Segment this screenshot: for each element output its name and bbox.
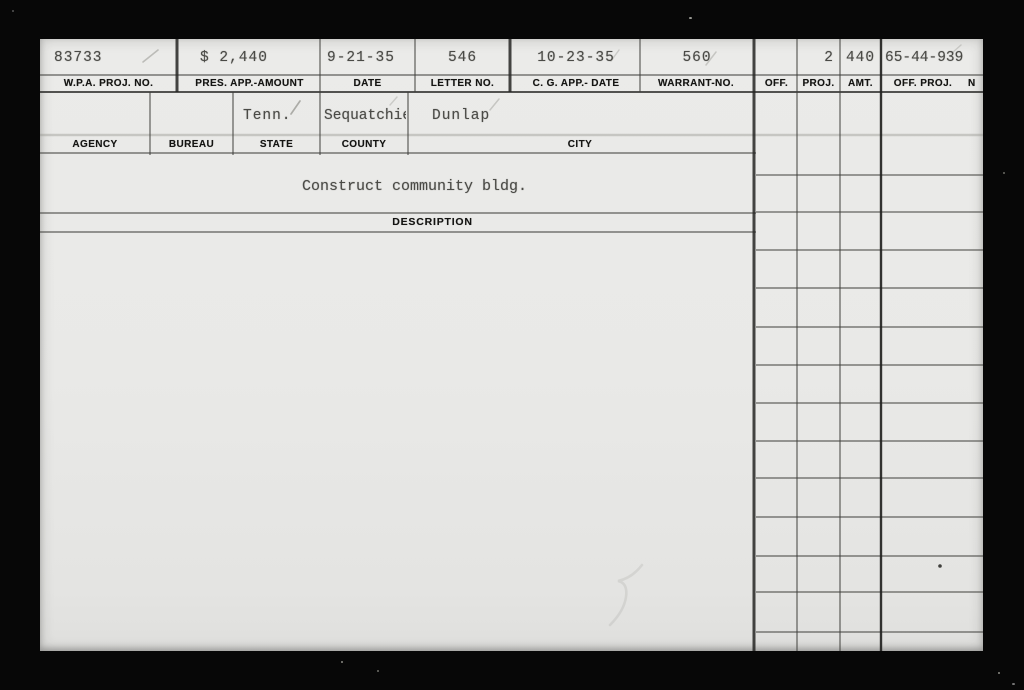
state-value: Tenn. [243, 105, 317, 127]
dust-speck [12, 10, 14, 12]
scanned-photo-frame: 83733 $ 2,440 9-21-35 546 10-23-35 560 2… [0, 0, 1024, 690]
pres-app-amount-label: PRES. APP.-AMOUNT [179, 77, 320, 90]
dust-speck [1003, 172, 1005, 174]
pres-app-amount-value: $ 2,440 [200, 47, 318, 69]
wpa-project-index-card: 83733 $ 2,440 9-21-35 546 10-23-35 560 2… [40, 39, 983, 651]
letter-no-label: LETTER NO. [415, 77, 510, 90]
warrant-no-value: 560 [642, 47, 752, 69]
date-label: DATE [320, 77, 415, 90]
off-proj-no-value: 65-44-939 [885, 47, 982, 69]
amt-value: 440 [842, 47, 879, 69]
pencil-marks [143, 45, 961, 625]
agency-value [50, 105, 145, 127]
county-label: COUNTY [320, 138, 408, 151]
date-value: 9-21-35 [327, 47, 413, 69]
dust-speck [377, 670, 379, 672]
wpa-proj-no-label: W.P.A. PROJ. NO. [40, 77, 177, 90]
description-value: Construct community bldg. [302, 176, 632, 198]
card-rule-lines [40, 39, 983, 651]
county-value: Sequatchie [324, 105, 406, 127]
cg-app-date-value: 10-23-35 [514, 47, 638, 69]
off-proj-no-label-cut: N [968, 77, 983, 90]
state-label: STATE [233, 138, 320, 151]
off-proj-value: 2 [799, 47, 834, 69]
dust-speck [998, 672, 1000, 674]
warrant-no-label: WARRANT-NO. [640, 77, 752, 90]
dust-speck [341, 661, 343, 663]
proj-label: PROJ. [797, 77, 840, 90]
off-proj-no-label: OFF. PROJ. [881, 77, 965, 90]
description-label: DESCRIPTION [360, 216, 505, 229]
city-label: CITY [408, 138, 752, 151]
dust-speck [1012, 683, 1015, 685]
letter-no-value: 546 [417, 47, 508, 69]
wpa-proj-no-value: 83733 [54, 47, 172, 69]
bureau-value [155, 105, 229, 127]
city-value: Dunlap [432, 105, 552, 127]
bureau-label: BUREAU [150, 138, 233, 151]
dust-speck [689, 17, 692, 19]
agency-label: AGENCY [40, 138, 150, 151]
amt-label: AMT. [840, 77, 881, 90]
cg-app-date-label: C. G. APP.- DATE [512, 77, 640, 90]
off-label: OFF. [756, 77, 797, 90]
